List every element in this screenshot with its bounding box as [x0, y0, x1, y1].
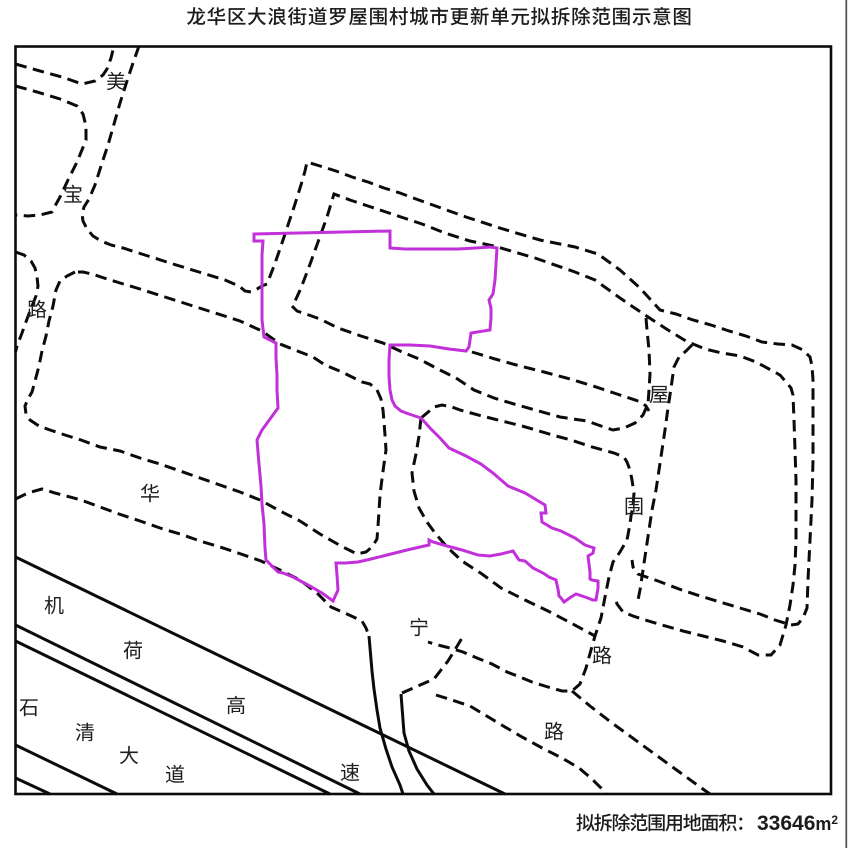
- svg-text:33646m2: 33646m2: [757, 812, 838, 835]
